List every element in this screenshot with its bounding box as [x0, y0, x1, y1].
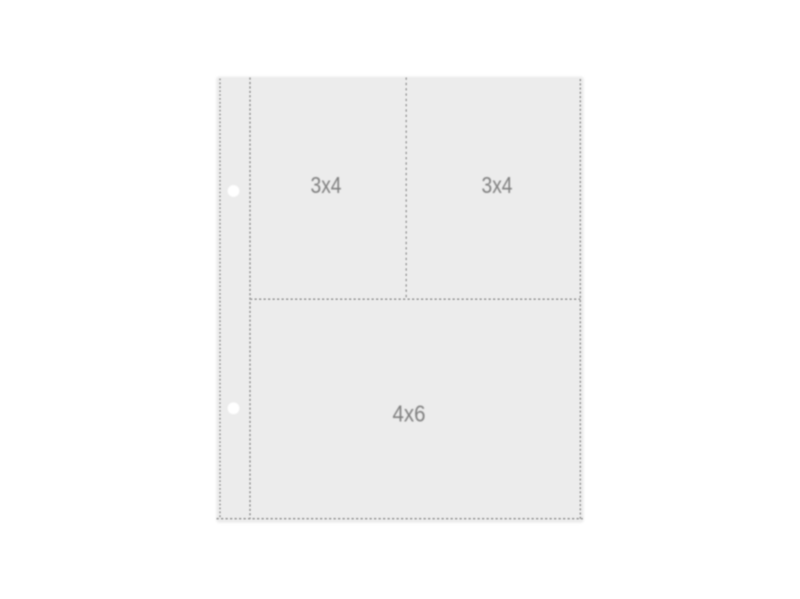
svg-text:4x6: 4x6 [393, 401, 426, 427]
svg-text:3x4: 3x4 [482, 172, 513, 198]
svg-text:3x4: 3x4 [311, 172, 342, 198]
